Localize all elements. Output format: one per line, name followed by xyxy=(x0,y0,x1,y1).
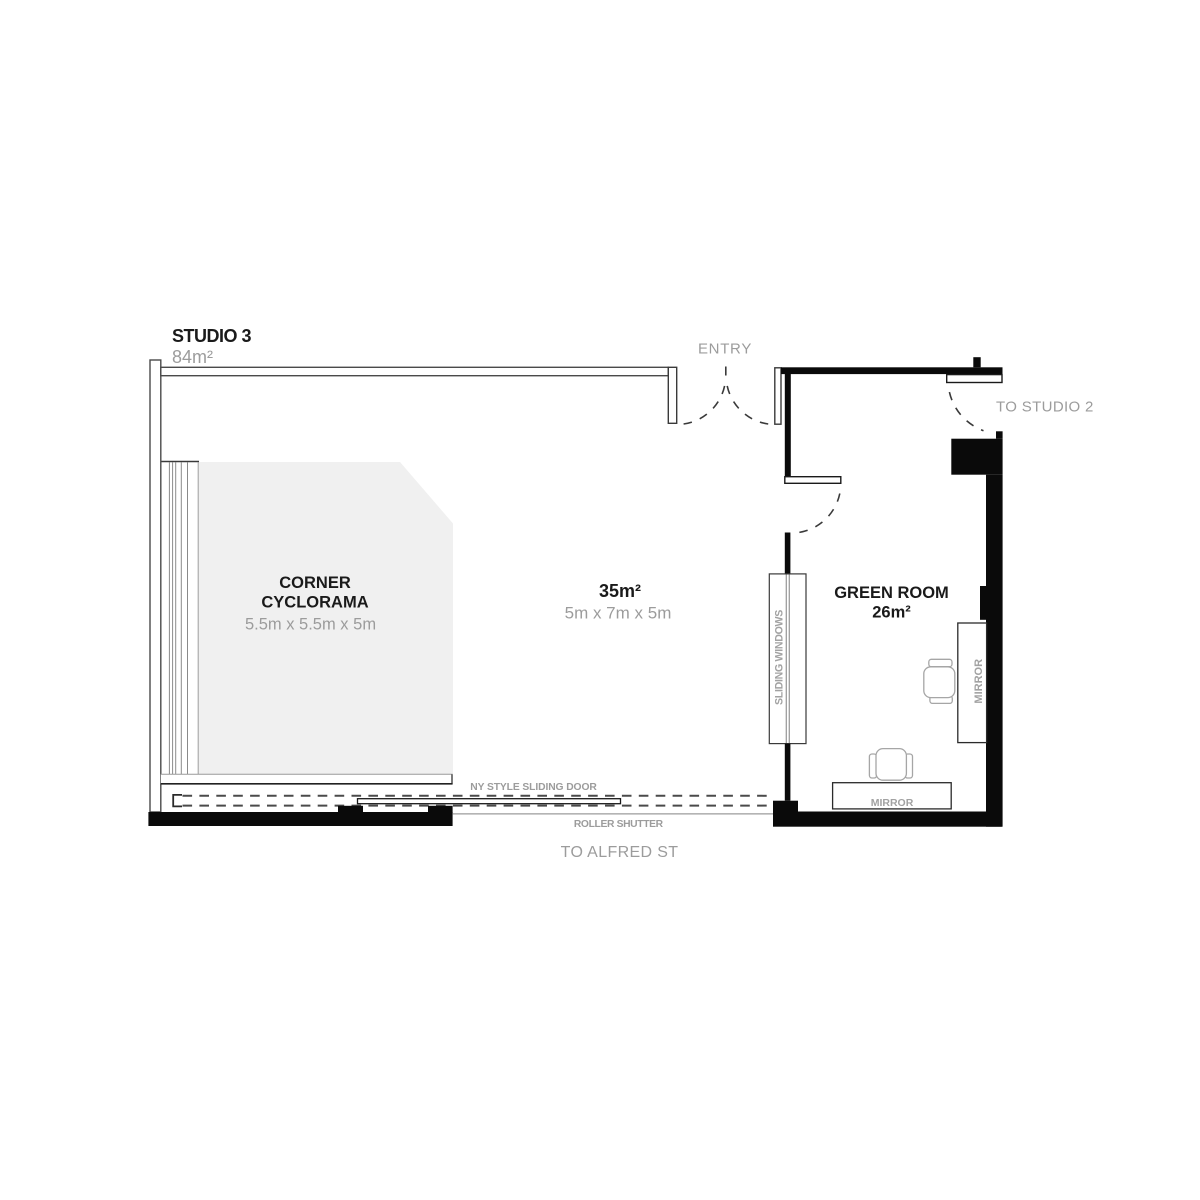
svg-text:MIRROR: MIRROR xyxy=(973,659,985,704)
svg-text:TO STUDIO 2: TO STUDIO 2 xyxy=(996,399,1094,416)
svg-text:ENTRY: ENTRY xyxy=(698,341,752,358)
svg-text:GREEN ROOM: GREEN ROOM xyxy=(834,584,949,602)
svg-text:CYCLORAMA: CYCLORAMA xyxy=(261,594,368,612)
svg-text:ROLLER SHUTTER: ROLLER SHUTTER xyxy=(574,819,664,830)
svg-text:SLIDING WINDOWS: SLIDING WINDOWS xyxy=(774,610,786,705)
svg-text:84m²: 84m² xyxy=(172,347,213,367)
svg-text:5m x 7m x 5m: 5m x 7m x 5m xyxy=(565,604,672,623)
svg-text:NY STYLE SLIDING DOOR: NY STYLE SLIDING DOOR xyxy=(470,782,597,793)
svg-text:STUDIO 3: STUDIO 3 xyxy=(172,326,252,346)
svg-text:CORNER: CORNER xyxy=(279,574,351,592)
svg-text:TO ALFRED ST: TO ALFRED ST xyxy=(561,844,679,861)
svg-text:26m²: 26m² xyxy=(872,604,911,622)
svg-text:5.5m x 5.5m x 5m: 5.5m x 5.5m x 5m xyxy=(245,616,376,634)
svg-text:35m²: 35m² xyxy=(599,581,641,601)
svg-text:MIRROR: MIRROR xyxy=(871,797,914,809)
